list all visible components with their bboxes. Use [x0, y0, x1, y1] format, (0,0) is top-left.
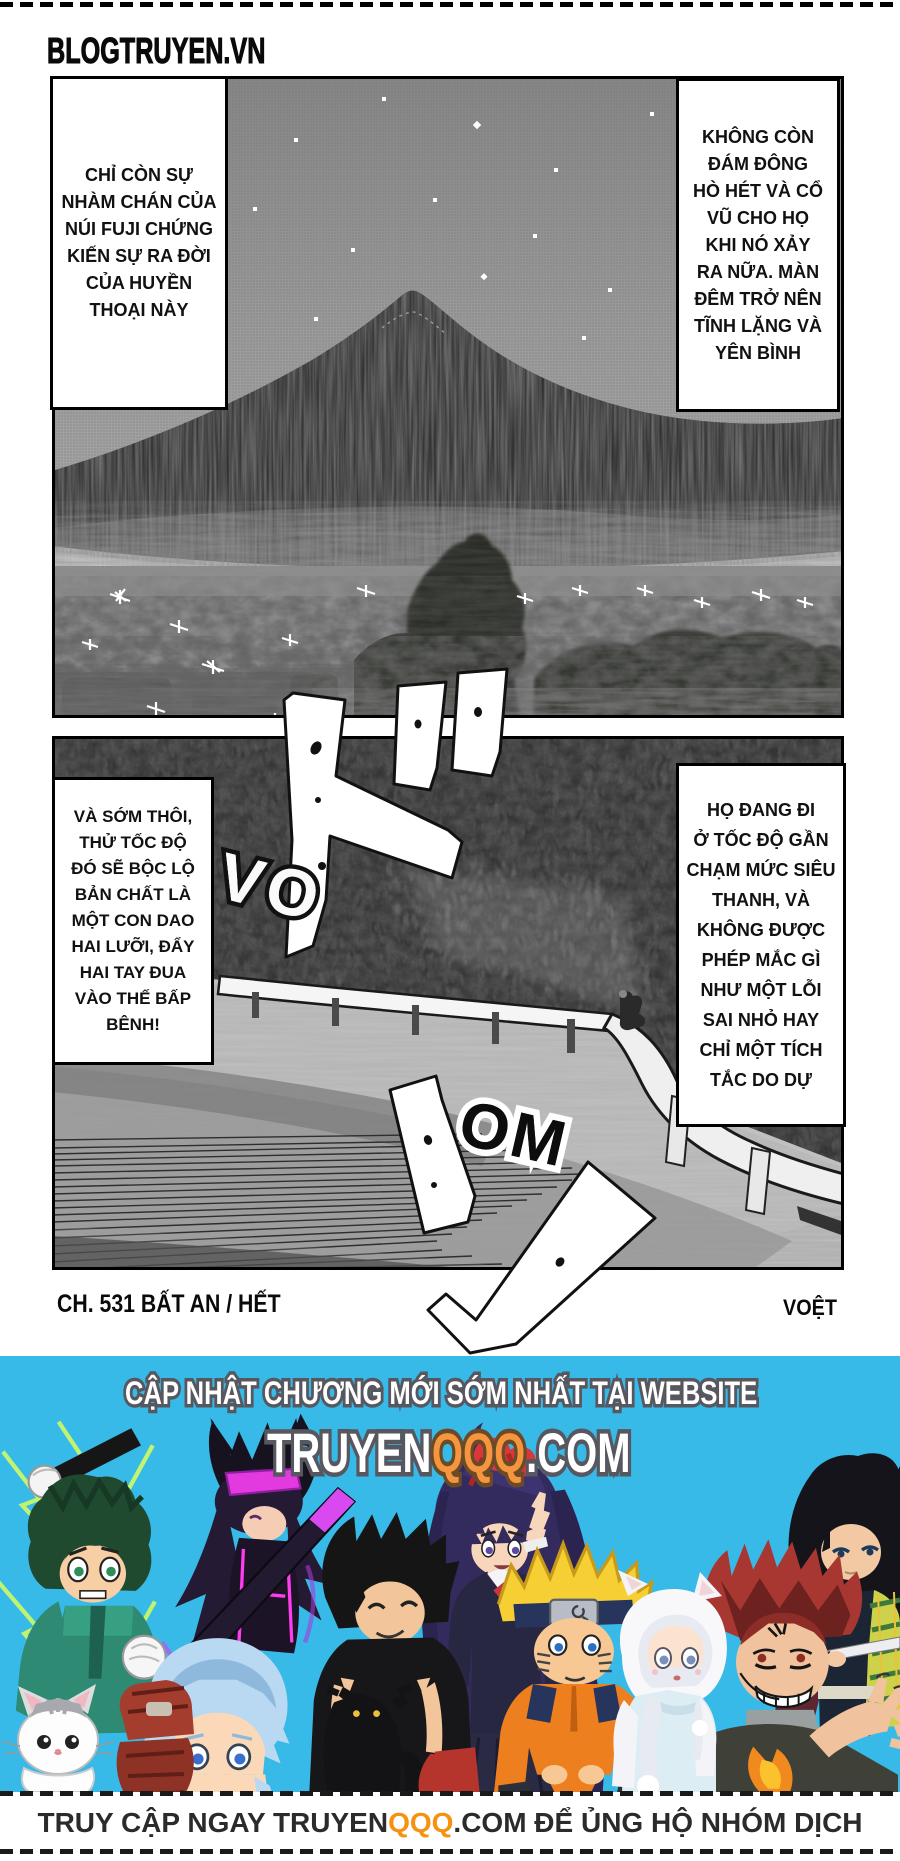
svg-text:.COM: .COM	[526, 1423, 630, 1485]
svg-text:QQQ: QQQ	[432, 1423, 525, 1485]
svg-text:CẬP NHẬT CHƯƠNG MỚI SỚM NHẤT T: CẬP NHẬT CHƯƠNG MỚI SỚM NHẤT TẠI WEBSITE	[125, 1374, 757, 1412]
svg-text:TRUYEN: TRUYEN	[267, 1423, 431, 1485]
svg-text:OM: OM	[453, 1086, 575, 1181]
